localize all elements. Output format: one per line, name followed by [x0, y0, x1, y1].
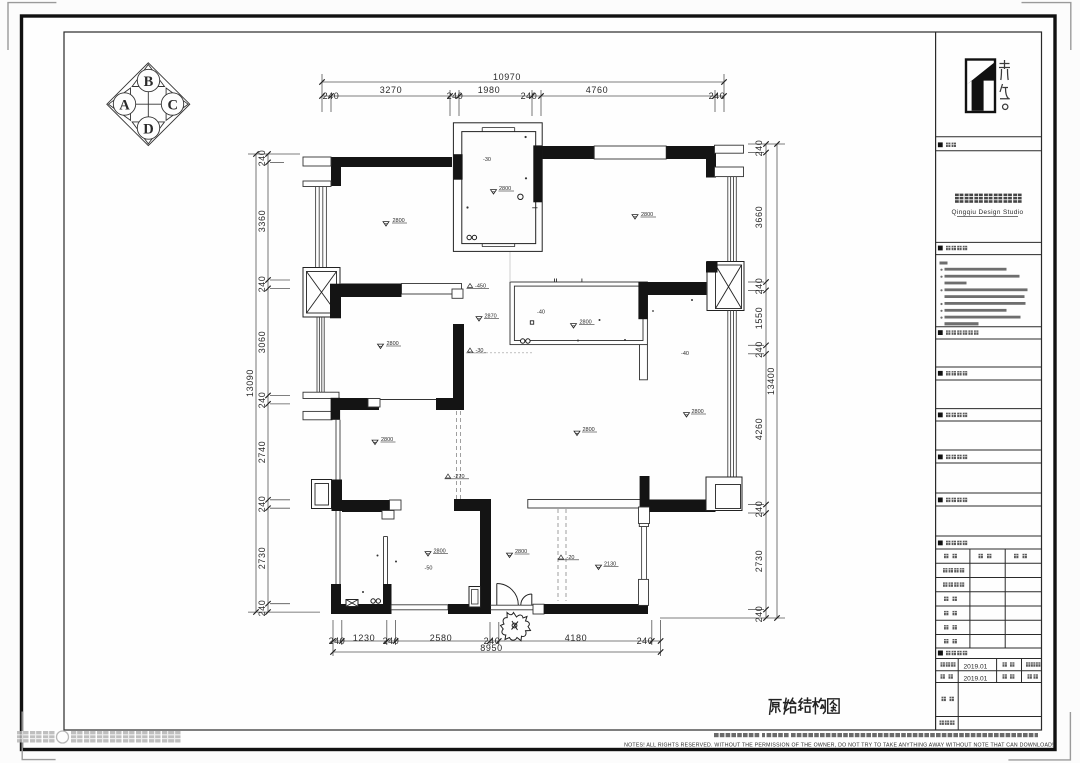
- svg-text:240: 240: [383, 636, 400, 646]
- svg-text:240: 240: [257, 496, 267, 513]
- svg-text:8950: 8950: [480, 643, 502, 653]
- svg-text:-30: -30: [483, 157, 491, 163]
- svg-text:10970: 10970: [493, 72, 521, 82]
- svg-text:240: 240: [323, 91, 340, 101]
- svg-text:240: 240: [521, 91, 538, 101]
- svg-text:240: 240: [754, 341, 764, 358]
- svg-text:1550: 1550: [754, 307, 764, 329]
- svg-text:C: C: [167, 98, 177, 114]
- svg-text:1980: 1980: [478, 85, 500, 95]
- svg-text:240: 240: [329, 636, 346, 646]
- svg-text:-450: -450: [475, 284, 486, 290]
- svg-text:4260: 4260: [754, 418, 764, 440]
- svg-text:240: 240: [257, 276, 267, 293]
- svg-text:3270: 3270: [380, 85, 402, 95]
- svg-text:2730: 2730: [257, 547, 267, 569]
- svg-text:Qingqiu Design Studio: Qingqiu Design Studio: [952, 209, 1024, 216]
- svg-text:-30: -30: [476, 348, 484, 354]
- svg-text:240: 240: [257, 150, 267, 167]
- svg-text:2740: 2740: [257, 441, 267, 463]
- svg-text:240: 240: [754, 140, 764, 157]
- svg-text:A: A: [119, 98, 130, 114]
- svg-text:2730: 2730: [754, 550, 764, 572]
- svg-text:-50: -50: [425, 566, 433, 572]
- svg-text:2580: 2580: [430, 633, 452, 643]
- svg-text:D: D: [143, 122, 153, 138]
- svg-text:2019.01: 2019.01: [964, 664, 988, 671]
- svg-text:240: 240: [447, 91, 464, 101]
- svg-text:240: 240: [637, 636, 654, 646]
- svg-text:1230: 1230: [353, 633, 375, 643]
- svg-text:3360: 3360: [257, 210, 267, 232]
- svg-text:240: 240: [709, 91, 726, 101]
- svg-text:13400: 13400: [766, 367, 776, 395]
- svg-text:4760: 4760: [586, 85, 608, 95]
- svg-text:240: 240: [257, 392, 267, 409]
- svg-text:-270: -270: [454, 474, 465, 480]
- svg-text:-40: -40: [681, 351, 689, 357]
- svg-text:B: B: [144, 74, 154, 90]
- svg-text:240: 240: [754, 606, 764, 623]
- svg-text:240: 240: [754, 278, 764, 295]
- svg-text:240: 240: [754, 501, 764, 518]
- svg-text:3660: 3660: [754, 206, 764, 228]
- svg-text:13090: 13090: [245, 369, 255, 397]
- svg-text:4180: 4180: [565, 633, 587, 643]
- svg-text:3060: 3060: [257, 331, 267, 353]
- svg-text:2019.01: 2019.01: [964, 676, 988, 683]
- svg-text:-40: -40: [537, 310, 545, 316]
- svg-text:NOTES! ALL RIGHTS RESERVED. WI: NOTES! ALL RIGHTS RESERVED. WITHOUT THE …: [624, 743, 1054, 749]
- svg-text:240: 240: [257, 600, 267, 617]
